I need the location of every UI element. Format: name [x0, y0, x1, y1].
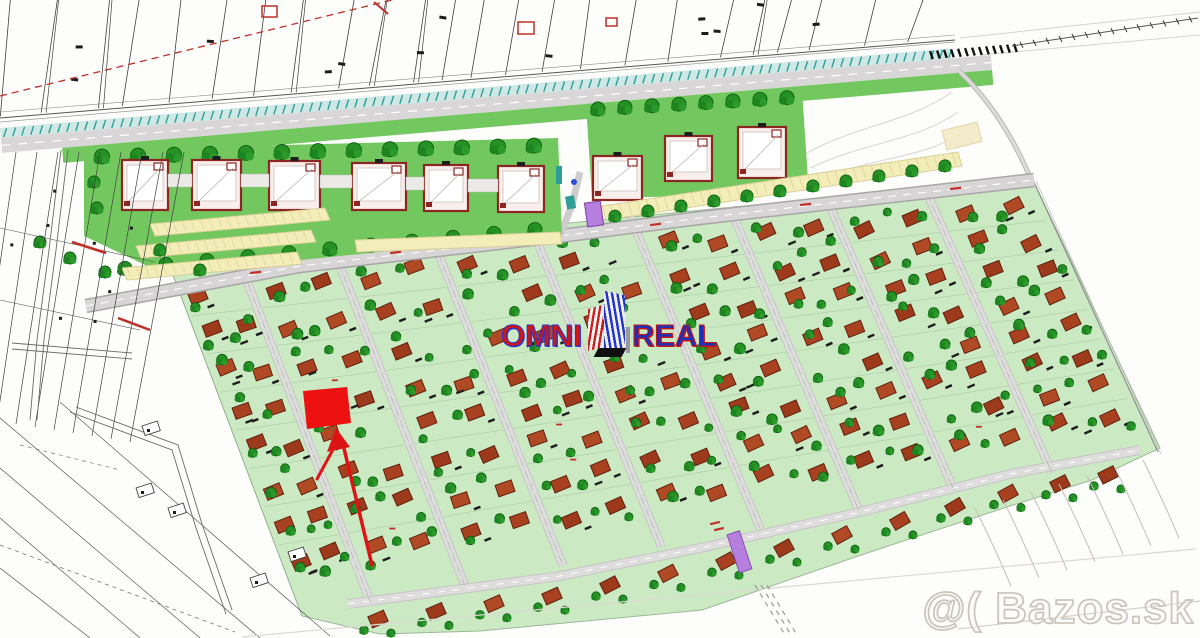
site-plan-image: OMNI REAL @( Bazos.sk — [0, 0, 1200, 638]
site-plan-svg — [0, 0, 1200, 638]
highlighted-plot — [303, 387, 351, 429]
